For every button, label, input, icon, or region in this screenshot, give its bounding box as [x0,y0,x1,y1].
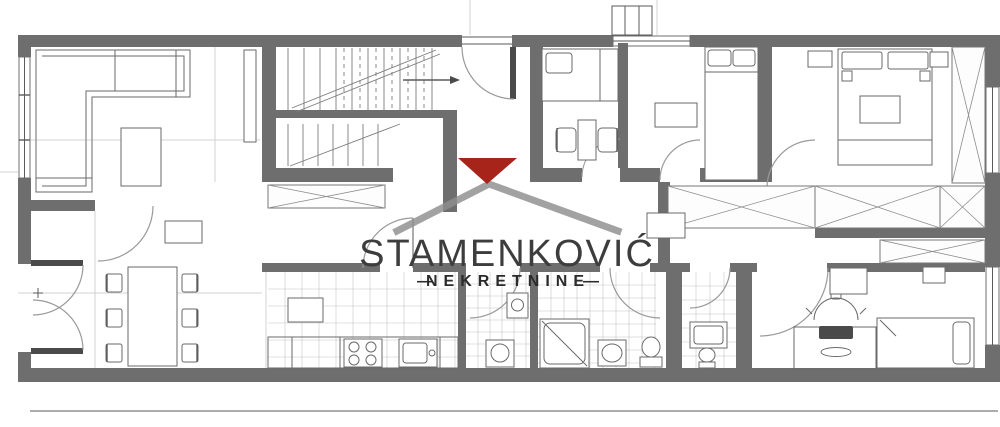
master-bedroom-door [767,140,815,188]
washbasin-icon [598,340,626,366]
red-gable-triangle-icon [458,158,517,184]
bathroom-fixtures [486,293,727,368]
single-bed-icon [705,47,758,180]
window-right-upper [986,87,999,173]
sofa-icon [36,50,190,192]
kitchen-island [288,298,323,322]
entry-door [462,47,516,99]
office-room-door [760,268,828,336]
kitchen-furniture [268,298,458,368]
dining-table-icon [128,267,177,366]
chair-icon [182,309,198,327]
bedroom-b-door [660,140,700,180]
living-dining-door [98,206,153,261]
wardrobe-x-icon [815,186,940,228]
sideboard [165,221,202,243]
stair-treads-lower [288,124,378,166]
chair-icon [106,309,122,327]
staircase [288,48,460,166]
kitchen-sink-icon [399,339,437,367]
watermark: STAMENKOVIĆ — NEKRETNINE — [359,158,655,290]
chair-icon [106,344,122,362]
wardrobe-x-icon [880,240,985,263]
balcony-french-doors [31,260,83,354]
brand-name: STAMENKOVIĆ [359,232,655,275]
side-table [655,103,697,127]
chair-icon [182,274,198,292]
chair-icon [182,344,198,362]
floor-plan-image: STAMENKOVIĆ — NEKRETNINE — [0,0,1000,427]
window-left [19,57,30,178]
coffee-table-icon [121,128,161,186]
washbasin-icon [690,322,727,348]
tagline-dash-right: — [583,273,599,290]
vent-shaft [612,6,652,35]
stove-burners-icon [344,339,382,367]
nightstand [808,51,832,67]
wardrobe-x-icon [940,186,985,228]
dresser [830,268,867,294]
shower-icon [540,319,589,368]
bathroom-door [610,268,660,318]
toilet-icon [640,337,662,367]
living-room-furniture [36,50,256,192]
washbasin-icon [507,293,528,318]
window-right-lower [986,267,999,345]
bedroom-furniture [542,47,948,180]
floor-plan-svg: STAMENKOVIĆ — NEKRETNINE — [0,0,1000,427]
double-bed-icon [838,49,932,165]
brand-tagline: NEKRETNINE [426,273,590,290]
office-chair-icon [806,293,866,357]
stair-direction-arrow-icon [403,76,460,84]
wardrobe-x-icon [952,47,985,183]
wardrobe-x-icon [268,185,385,208]
house-roof-icon [397,184,618,231]
toilet-icon [699,348,715,368]
entry-threshold [462,37,512,44]
nightstand [923,267,945,283]
office-furniture [794,267,974,369]
tv-unit [244,50,256,142]
single-bed-icon [542,49,618,101]
chair-icon [106,274,122,292]
nightstand [930,52,948,67]
desk-icon [556,120,618,160]
single-bed-icon [877,318,974,368]
washing-machine-icon [486,340,514,367]
wardrobe-x-icon [668,186,815,228]
